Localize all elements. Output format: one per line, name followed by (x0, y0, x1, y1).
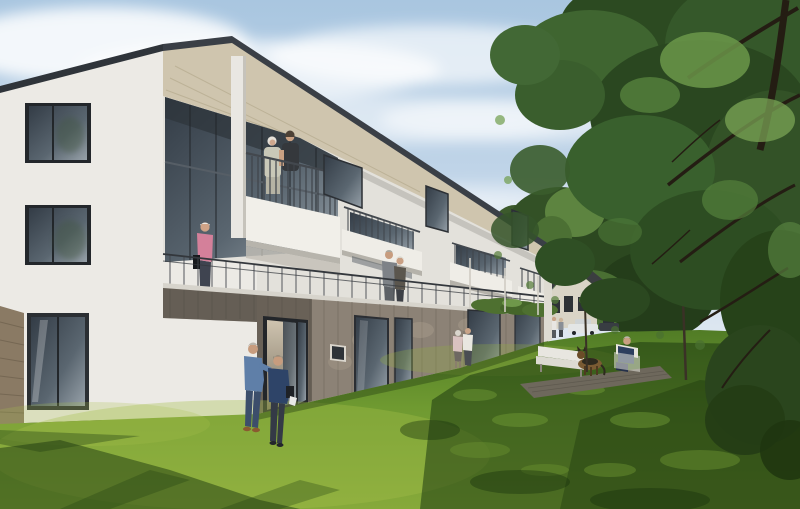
polo-shirt (282, 143, 299, 171)
shoe (252, 428, 260, 432)
foliage-highlight (598, 218, 642, 246)
foliage-blob (491, 212, 539, 248)
woman-head (396, 257, 403, 264)
leaf-cluster (494, 251, 502, 259)
foliage-highlight (620, 77, 680, 113)
person-legs (559, 330, 563, 337)
shadow-blob (470, 470, 570, 494)
dog-saddle (582, 358, 598, 365)
gable-glass-door (27, 313, 89, 410)
person-body (552, 321, 557, 330)
foliage-blob (535, 238, 595, 286)
dappled-light (450, 442, 510, 458)
dog-head (577, 351, 585, 359)
dappled-light (453, 389, 497, 401)
leaf-cluster (526, 281, 534, 289)
tree-reflection (56, 117, 84, 153)
foliage-highlight (702, 180, 758, 220)
dappled-light (660, 450, 740, 470)
foliage-highlight (660, 32, 750, 88)
woman-head (455, 330, 461, 336)
person-head (552, 317, 556, 321)
architectural-rendering (0, 0, 800, 509)
foliage-highlight (725, 98, 795, 142)
blue-shirt (244, 356, 264, 392)
man-shirt (463, 334, 473, 351)
man-head (623, 337, 631, 345)
person-body (559, 322, 564, 330)
window-glass (332, 346, 344, 360)
dog-leg (590, 367, 592, 376)
leaf-cluster (695, 340, 705, 350)
man-head (465, 328, 471, 334)
woman-top (453, 336, 463, 352)
planting (522, 303, 558, 317)
door-sidelight (298, 322, 306, 404)
house-window (564, 296, 573, 312)
car-wheel (572, 331, 576, 335)
head (273, 356, 283, 366)
person-head (559, 318, 563, 322)
shadow-blob (400, 420, 460, 440)
dappled-light (492, 413, 548, 427)
face (270, 140, 276, 146)
trousers (199, 260, 211, 288)
person-legs (552, 330, 556, 338)
column-shade (243, 56, 246, 238)
dappled-light (584, 463, 636, 477)
cardigan (264, 147, 281, 177)
man-head (385, 251, 393, 259)
foliage-blob (510, 145, 570, 195)
leaf-cluster (504, 176, 512, 184)
foliage-blob (580, 278, 650, 322)
shoe (277, 443, 284, 447)
skirt (266, 176, 280, 194)
dog-leg (596, 366, 598, 375)
leaf-cluster (495, 115, 505, 125)
bench-leg (540, 364, 542, 372)
gable-window-upper (25, 103, 91, 163)
car-wheel (590, 331, 594, 335)
head (248, 344, 258, 354)
white-car (568, 324, 598, 333)
dappled-light (610, 412, 670, 428)
tree-reflection (54, 220, 86, 260)
gable-window-lower (25, 205, 91, 265)
leaf-cluster (551, 296, 559, 304)
ground-floor-window-small (330, 344, 346, 362)
shoe (270, 441, 277, 445)
shoe (243, 427, 251, 431)
man-trousers (464, 350, 472, 366)
leaf-cluster (611, 326, 619, 334)
leaf-cluster (656, 331, 664, 339)
rendering-canvas (0, 0, 800, 509)
upper-window (426, 186, 448, 232)
dog-leg (584, 366, 586, 375)
foliage-blob (490, 25, 560, 85)
woman-skirt (454, 351, 462, 362)
bench-leg (580, 369, 582, 377)
